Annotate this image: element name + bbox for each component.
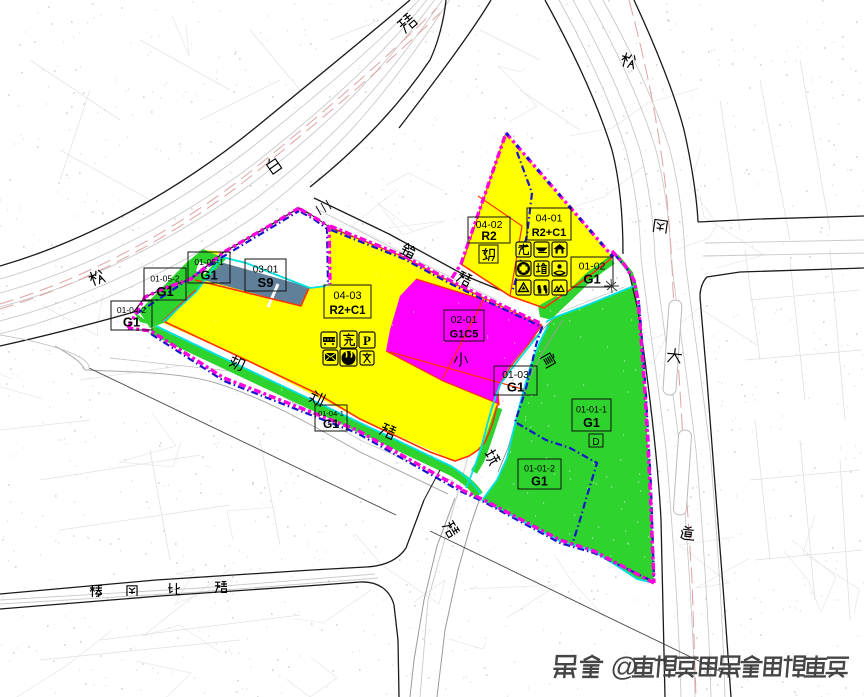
svg-text:G1: G1 xyxy=(323,417,339,431)
svg-text:G1: G1 xyxy=(583,271,600,286)
svg-text:P: P xyxy=(363,333,371,348)
svg-text:01-05-2: 01-05-2 xyxy=(150,273,180,283)
svg-text:04-03: 04-03 xyxy=(333,290,361,302)
svg-text:G1: G1 xyxy=(156,284,173,299)
svg-text:G1: G1 xyxy=(507,380,524,395)
svg-text:R2: R2 xyxy=(481,229,497,243)
svg-text:G1C5: G1C5 xyxy=(450,328,479,340)
svg-text:S9: S9 xyxy=(258,275,274,290)
svg-text:R2+C1: R2+C1 xyxy=(532,227,567,239)
svg-text:01-01-2: 01-01-2 xyxy=(524,464,555,474)
svg-text:04-01: 04-01 xyxy=(536,212,563,224)
svg-text:G1: G1 xyxy=(123,315,140,330)
svg-text:R2+C1: R2+C1 xyxy=(329,305,366,317)
svg-text:G1: G1 xyxy=(583,416,600,430)
svg-text:03-01: 03-01 xyxy=(253,264,279,275)
svg-text:D: D xyxy=(592,437,599,448)
svg-text:G1: G1 xyxy=(531,474,548,488)
svg-text:G1: G1 xyxy=(200,267,217,282)
svg-text:01-05-1: 01-05-1 xyxy=(194,257,224,267)
svg-text:01-01-1: 01-01-1 xyxy=(576,404,607,414)
svg-text:02-01: 02-01 xyxy=(451,314,478,326)
